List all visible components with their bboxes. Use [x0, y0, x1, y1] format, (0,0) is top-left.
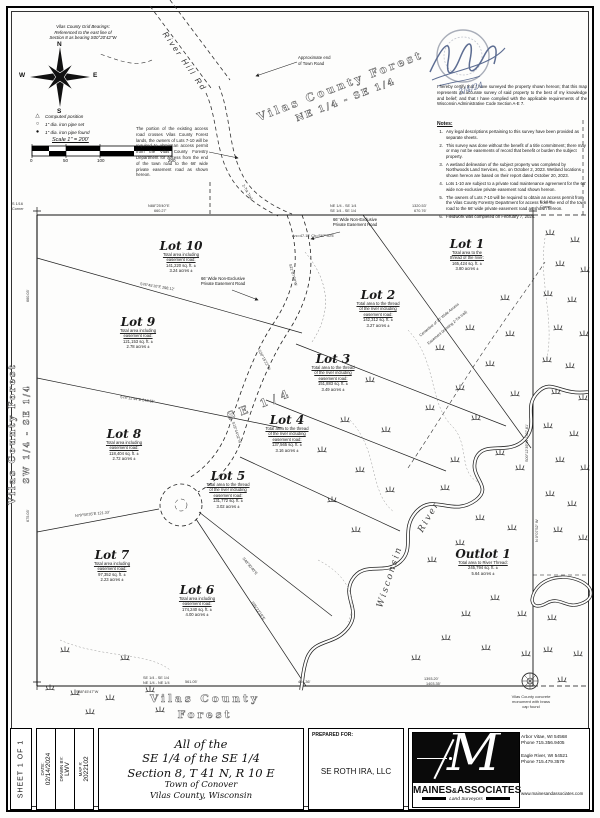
lot-name: Lot 7	[64, 549, 160, 561]
compass-east-label: E	[93, 72, 97, 79]
bearing-label: S88°45'47"W	[76, 690, 98, 694]
lot-area-line: 5.64 acres ±	[435, 571, 531, 576]
compass-north-label: N	[57, 41, 62, 48]
text-line: Vilas County	[120, 692, 290, 708]
text-line: Town of Conover	[99, 780, 303, 791]
text-line: SE 1/4 of the SE 1/4	[99, 751, 303, 765]
legend: △Computed position○1" dia. iron pipe set…	[34, 112, 90, 136]
note-item: 2.This survey was done without the benef…	[437, 143, 589, 160]
meta-value: 02/14/2024	[45, 753, 52, 786]
lot-label: Lot 10Total area includingeasement road:…	[133, 240, 229, 274]
lot-name: Lot 9	[90, 316, 186, 328]
note-item: 3.A wetland delineation of the subject p…	[437, 162, 589, 179]
lot-area-line: 3.27 acres ±	[330, 323, 426, 328]
legend-symbol-icon: ●	[34, 129, 41, 135]
bearing-label: 1403.35'	[426, 682, 440, 686]
legend-label: 1" dia. iron pipe found	[45, 130, 90, 135]
corner-label-line: Corner	[12, 207, 24, 212]
text-line: Forest	[120, 708, 290, 724]
bearing-label: S35°22'18"E	[250, 601, 266, 621]
lot-name: Lot 2	[330, 289, 426, 301]
lot-label: Lot 1Total area to thethread of the rive…	[419, 238, 515, 272]
legend-label: Computed position	[45, 114, 83, 119]
corner-label: NE 1/4 - SE 1/4SE 1/4 - SE 1/4	[330, 204, 356, 213]
meta-text: MAP #:2022102	[78, 756, 90, 781]
bearing-label: N 0°07'52" W	[535, 519, 539, 542]
scale-tick-label: 50	[63, 158, 68, 163]
scale-label: Scale 1" = 200'	[52, 137, 89, 143]
bearing-label: S78°12'44"E 243.65'	[120, 395, 155, 404]
firm-name: MAINES&ASSOCIATES	[413, 785, 519, 796]
bearing-label: S76°45'10"E 298.12'	[140, 282, 175, 291]
meta-text: DATE:02/14/2024	[40, 753, 52, 786]
firm-address-line: Phone 715.479.3579	[521, 759, 589, 765]
bearing-label: N79°58'35"E 121.33'	[75, 510, 110, 518]
lot-area-line: 3.02 acres ±	[180, 504, 276, 509]
text-line: of Town Road	[298, 61, 350, 67]
note-item: 4.Lots 1-10 are subject to a private roa…	[437, 181, 589, 192]
bearing-label: S48°30'40"E	[241, 557, 258, 576]
note-number: 5.	[437, 195, 443, 212]
firm-logo-mark: M	[413, 733, 519, 783]
lot-area-line: 4.00 acres ±	[149, 612, 245, 617]
title-block: SHEET 1 OF 1 DATE:02/14/2024DRAWN BY:LWV…	[10, 728, 590, 810]
bearing-label: 404.36'	[298, 680, 310, 684]
legend-row: ○1" dia. iron pipe set	[34, 120, 90, 128]
compass-west-label: W	[19, 72, 25, 79]
text-line: Vilas County Forest	[5, 319, 20, 549]
lot-label: Lot 8Total area includingeasement road:1…	[76, 428, 172, 462]
town-road-end-note: Approximate endof Town Road	[298, 55, 350, 66]
legend-row: ●1" dia. iron pipe found	[34, 128, 90, 136]
lot-name: Lot 4	[239, 414, 335, 426]
client-name: SE ROTH IRA, LLC	[309, 767, 403, 776]
bearing-label: S00°12'39"W 1327.81'	[525, 424, 529, 462]
lot-area-line: 3.49 acres ±	[285, 387, 381, 392]
meta-value: 2022102	[83, 756, 90, 781]
note-item: 6.Fieldwork was completed on February 7,…	[437, 214, 589, 220]
lot-area-line: 3.24 acres ±	[133, 268, 229, 273]
lot-area-line: 2.23 acres ±	[64, 577, 160, 582]
lot-name: Lot 8	[76, 428, 172, 440]
lot-name: Lot 6	[149, 584, 245, 596]
meta-column: MAP #:2022102	[75, 729, 93, 809]
river-label-word1: Wisconsin	[375, 545, 404, 609]
corner-label: SE 1/4 - SE 1/4NE 1/4 - NE 1/4	[143, 676, 170, 685]
river-label-word2: River	[416, 500, 442, 535]
meta-text: DRAWN BY:LWV	[59, 756, 71, 781]
river-hill-rd-label: River Hill Rd	[161, 30, 209, 93]
note-number: 1.	[437, 129, 443, 140]
legend-symbol-icon: △	[34, 113, 41, 119]
note-number: 4.	[437, 181, 443, 192]
survey-plat-sheet: Vilas County Grid Bearings:Referenced to…	[0, 0, 600, 818]
lot-name: Lot 5	[180, 470, 276, 482]
note-text: A wetland delineation of the subject pro…	[446, 162, 589, 179]
scale-tick-label: 100	[97, 158, 105, 163]
firm-address: Arbor Vitae, WI 54568Phone 715.356.9405	[521, 734, 589, 747]
note-text: Any legal descriptions pertaining to thi…	[446, 129, 589, 140]
firm-address-line: Phone 715.356.9405	[521, 740, 589, 746]
sheet-number: SHEET 1 OF 1	[18, 740, 25, 799]
firm-tagline: Land Surveyors	[413, 797, 519, 802]
meta-value: LWV	[64, 756, 71, 781]
bearing-label: 660.27'	[154, 209, 166, 213]
bearing-label: 660.03'	[26, 290, 30, 302]
corner-label: S 1/16Corner	[12, 202, 24, 211]
lot-label: Lot 9Total area includingeasement road:1…	[90, 316, 186, 350]
prepared-for-label: PREPARED FOR:	[312, 732, 353, 738]
firm-name-b: ASSOCIATES	[457, 785, 521, 796]
monument-note: Vilas County concretemonument with brass…	[505, 694, 557, 709]
text-line: cap found	[505, 704, 557, 709]
note-text: Lots 1-10 are subject to a private road …	[446, 181, 589, 192]
lot-name: Outlot 1	[435, 548, 531, 560]
note-item: 5.The owners of Lots 7-10 will be requir…	[437, 195, 589, 212]
forest-label-south: Vilas CountyForest	[120, 692, 290, 724]
text-line: Vilas County, Wisconsin	[99, 791, 303, 802]
lot-name: Lot 3	[285, 353, 381, 365]
bearing-label: Arc=47.13' Ch=S67°30'E	[292, 234, 334, 238]
lot-label: Lot 7Total area includingeasement road:9…	[64, 549, 160, 583]
lot-label: Lot 2Total area to the threadof the rive…	[330, 289, 426, 328]
note-text: Fieldwork was completed on February 7, 2…	[446, 214, 535, 220]
bearing-label: S30°15'22"W	[257, 349, 271, 371]
text-line: Private Easement Road	[188, 281, 258, 286]
map-labels-layer: Vilas County Grid Bearings:Referenced to…	[0, 0, 600, 818]
note-text: The owners of Lots 7-10 will be required…	[446, 195, 589, 212]
lot-area-line: 3.80 acres ±	[419, 266, 515, 271]
note-text: This survey was done without the benefit…	[446, 143, 589, 160]
scale-tick-label: 0	[30, 158, 33, 163]
firm-logo: M MAINES&ASSOCIATES Land Surveyors	[412, 732, 520, 808]
legend-row: △Computed position	[34, 112, 90, 120]
lot-area-line: 2.72 acres ±	[76, 456, 172, 461]
prepared-for-box: PREPARED FOR: SE ROTH IRA, LLC	[308, 728, 404, 810]
notes-list: 1.Any legal descriptions pertaining to t…	[437, 129, 589, 222]
drawing-title-box: All of theSE 1/4 of the SE 1/4Section 8,…	[98, 728, 304, 810]
logo-letter: M	[447, 733, 500, 779]
bearing-label: 2-Trk Trail	[241, 184, 253, 201]
lot-label: Lot 5Total area to the threadof the rive…	[180, 470, 276, 509]
meta-column: DATE:02/14/2024	[37, 729, 56, 809]
grid-bearings-note: Vilas County Grid Bearings:Referenced to…	[28, 24, 138, 41]
meta-column: DRAWN BY:LWV	[56, 729, 75, 809]
bearing-label: 1320.53'	[412, 204, 426, 208]
legend-symbol-icon: ○	[34, 121, 41, 127]
easement-road-label-top: 66' Wide Non-ExclusivePrivate Easement R…	[320, 217, 390, 228]
sheet-number-box: SHEET 1 OF 1	[10, 728, 32, 810]
bearing-label: 1393.20'	[424, 677, 438, 681]
note-item: 1.Any legal descriptions pertaining to t…	[437, 129, 589, 140]
firm-address: Eagle River, WI 54521Phone 715.479.3579	[521, 753, 589, 766]
forest-access-note: The portion of the existing access road …	[136, 126, 208, 178]
corner-label-line: Corner	[540, 205, 552, 210]
notes-title: Notes:	[437, 121, 453, 127]
bearing-label: 675.03'	[26, 510, 30, 522]
easement-road-label-mid: 66' Wide Non-ExclusivePrivate Easement R…	[188, 276, 258, 287]
firm-addresses: Arbor Vitae, WI 54568Phone 715.356.9405E…	[521, 734, 589, 771]
lot-name: Lot 10	[133, 240, 229, 252]
text-line: Private Easement Road	[320, 222, 390, 227]
drawing-meta-box: DATE:02/14/2024DRAWN BY:LWVMAP #:2022102	[36, 728, 94, 810]
bearing-label: S21°07'38"W	[288, 263, 298, 286]
bearing-label: 561.05'	[185, 680, 197, 684]
bearing-label: 670.76'	[414, 209, 426, 213]
note-number: 3.	[437, 162, 443, 179]
surveyor-firm-box: M MAINES&ASSOCIATES Land Surveyors Arbor…	[408, 728, 590, 810]
corner-label: E 1/16Corner	[540, 200, 552, 209]
lot-label: Lot 4Total area to the threadof the rive…	[239, 414, 335, 453]
bearing-label: N88°25'40"E	[148, 204, 170, 208]
text-line: Section 8 as bearing S00°20'42"W	[28, 35, 138, 41]
corner-label-line: SE 1/4 - SE 1/4	[330, 209, 356, 214]
text-line: All of the	[99, 737, 303, 751]
lot-label: Outlot 1Total area to River Thread:245,7…	[435, 548, 531, 576]
note-number: 6.	[437, 214, 443, 220]
firm-name-a: MAINES	[413, 785, 452, 796]
lot-name: Lot 1	[419, 238, 515, 250]
corner-label-line: NE 1/4 - NE 1/4	[143, 681, 170, 686]
note-number: 2.	[437, 143, 443, 160]
legend-label: 1" dia. iron pipe set	[45, 122, 84, 127]
scale-tick-label: 200	[168, 158, 176, 163]
text-line: Section 8, T 41 N, R 10 E	[99, 766, 303, 780]
lot-label: Lot 6Total area includingeasement road:1…	[149, 584, 245, 618]
firm-website: www.mainesandassociates.com	[521, 791, 589, 796]
lot-area-line: 3.16 acres ±	[239, 448, 335, 453]
lot-label: Lot 3Total area to the threadof the rive…	[285, 353, 381, 392]
lot-area-line: 2.78 acres ±	[90, 344, 186, 349]
